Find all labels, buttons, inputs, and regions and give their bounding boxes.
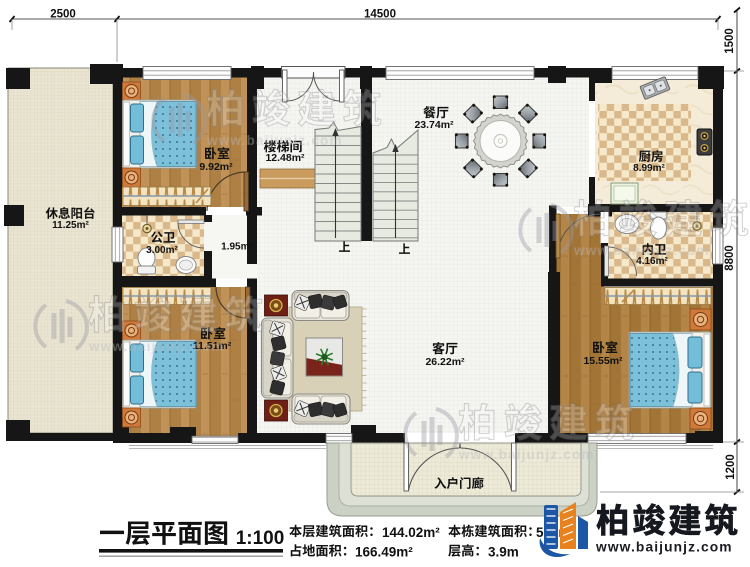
svg-text:23.74m²: 23.74m² xyxy=(414,119,454,131)
svg-text:1:100: 1:100 xyxy=(236,528,285,549)
svg-text:12.48m²: 12.48m² xyxy=(265,152,305,164)
svg-text:8.99m²: 8.99m² xyxy=(633,163,665,174)
svg-text:1.95m²: 1.95m² xyxy=(221,242,253,253)
svg-text:3.00m²: 3.00m² xyxy=(146,245,178,256)
svg-text:26.22m²: 26.22m² xyxy=(425,356,465,368)
svg-text:11.25m²: 11.25m² xyxy=(52,220,89,231)
svg-text:2500: 2500 xyxy=(50,9,76,21)
svg-text:9.92m²: 9.92m² xyxy=(199,161,233,173)
svg-text:1500: 1500 xyxy=(724,28,736,54)
svg-text:www.baijunjz.com: www.baijunjz.com xyxy=(595,540,733,555)
svg-text:14500: 14500 xyxy=(364,9,396,21)
svg-text:1200: 1200 xyxy=(725,454,737,480)
svg-text:166.49m²: 166.49m² xyxy=(355,545,413,560)
svg-text:15.55m²: 15.55m² xyxy=(583,355,623,367)
svg-text:www.baijunjz.com: www.baijunjz.com xyxy=(573,243,710,258)
svg-text:www.baijunjz.com: www.baijunjz.com xyxy=(88,339,225,354)
svg-text:3.9m: 3.9m xyxy=(488,545,519,560)
svg-text:www.baijunjz.com: www.baijunjz.com xyxy=(206,133,343,148)
svg-text:8800: 8800 xyxy=(724,245,736,271)
svg-text:www.baijunjz.com: www.baijunjz.com xyxy=(458,447,595,462)
svg-text:144.02m²: 144.02m² xyxy=(382,525,440,540)
